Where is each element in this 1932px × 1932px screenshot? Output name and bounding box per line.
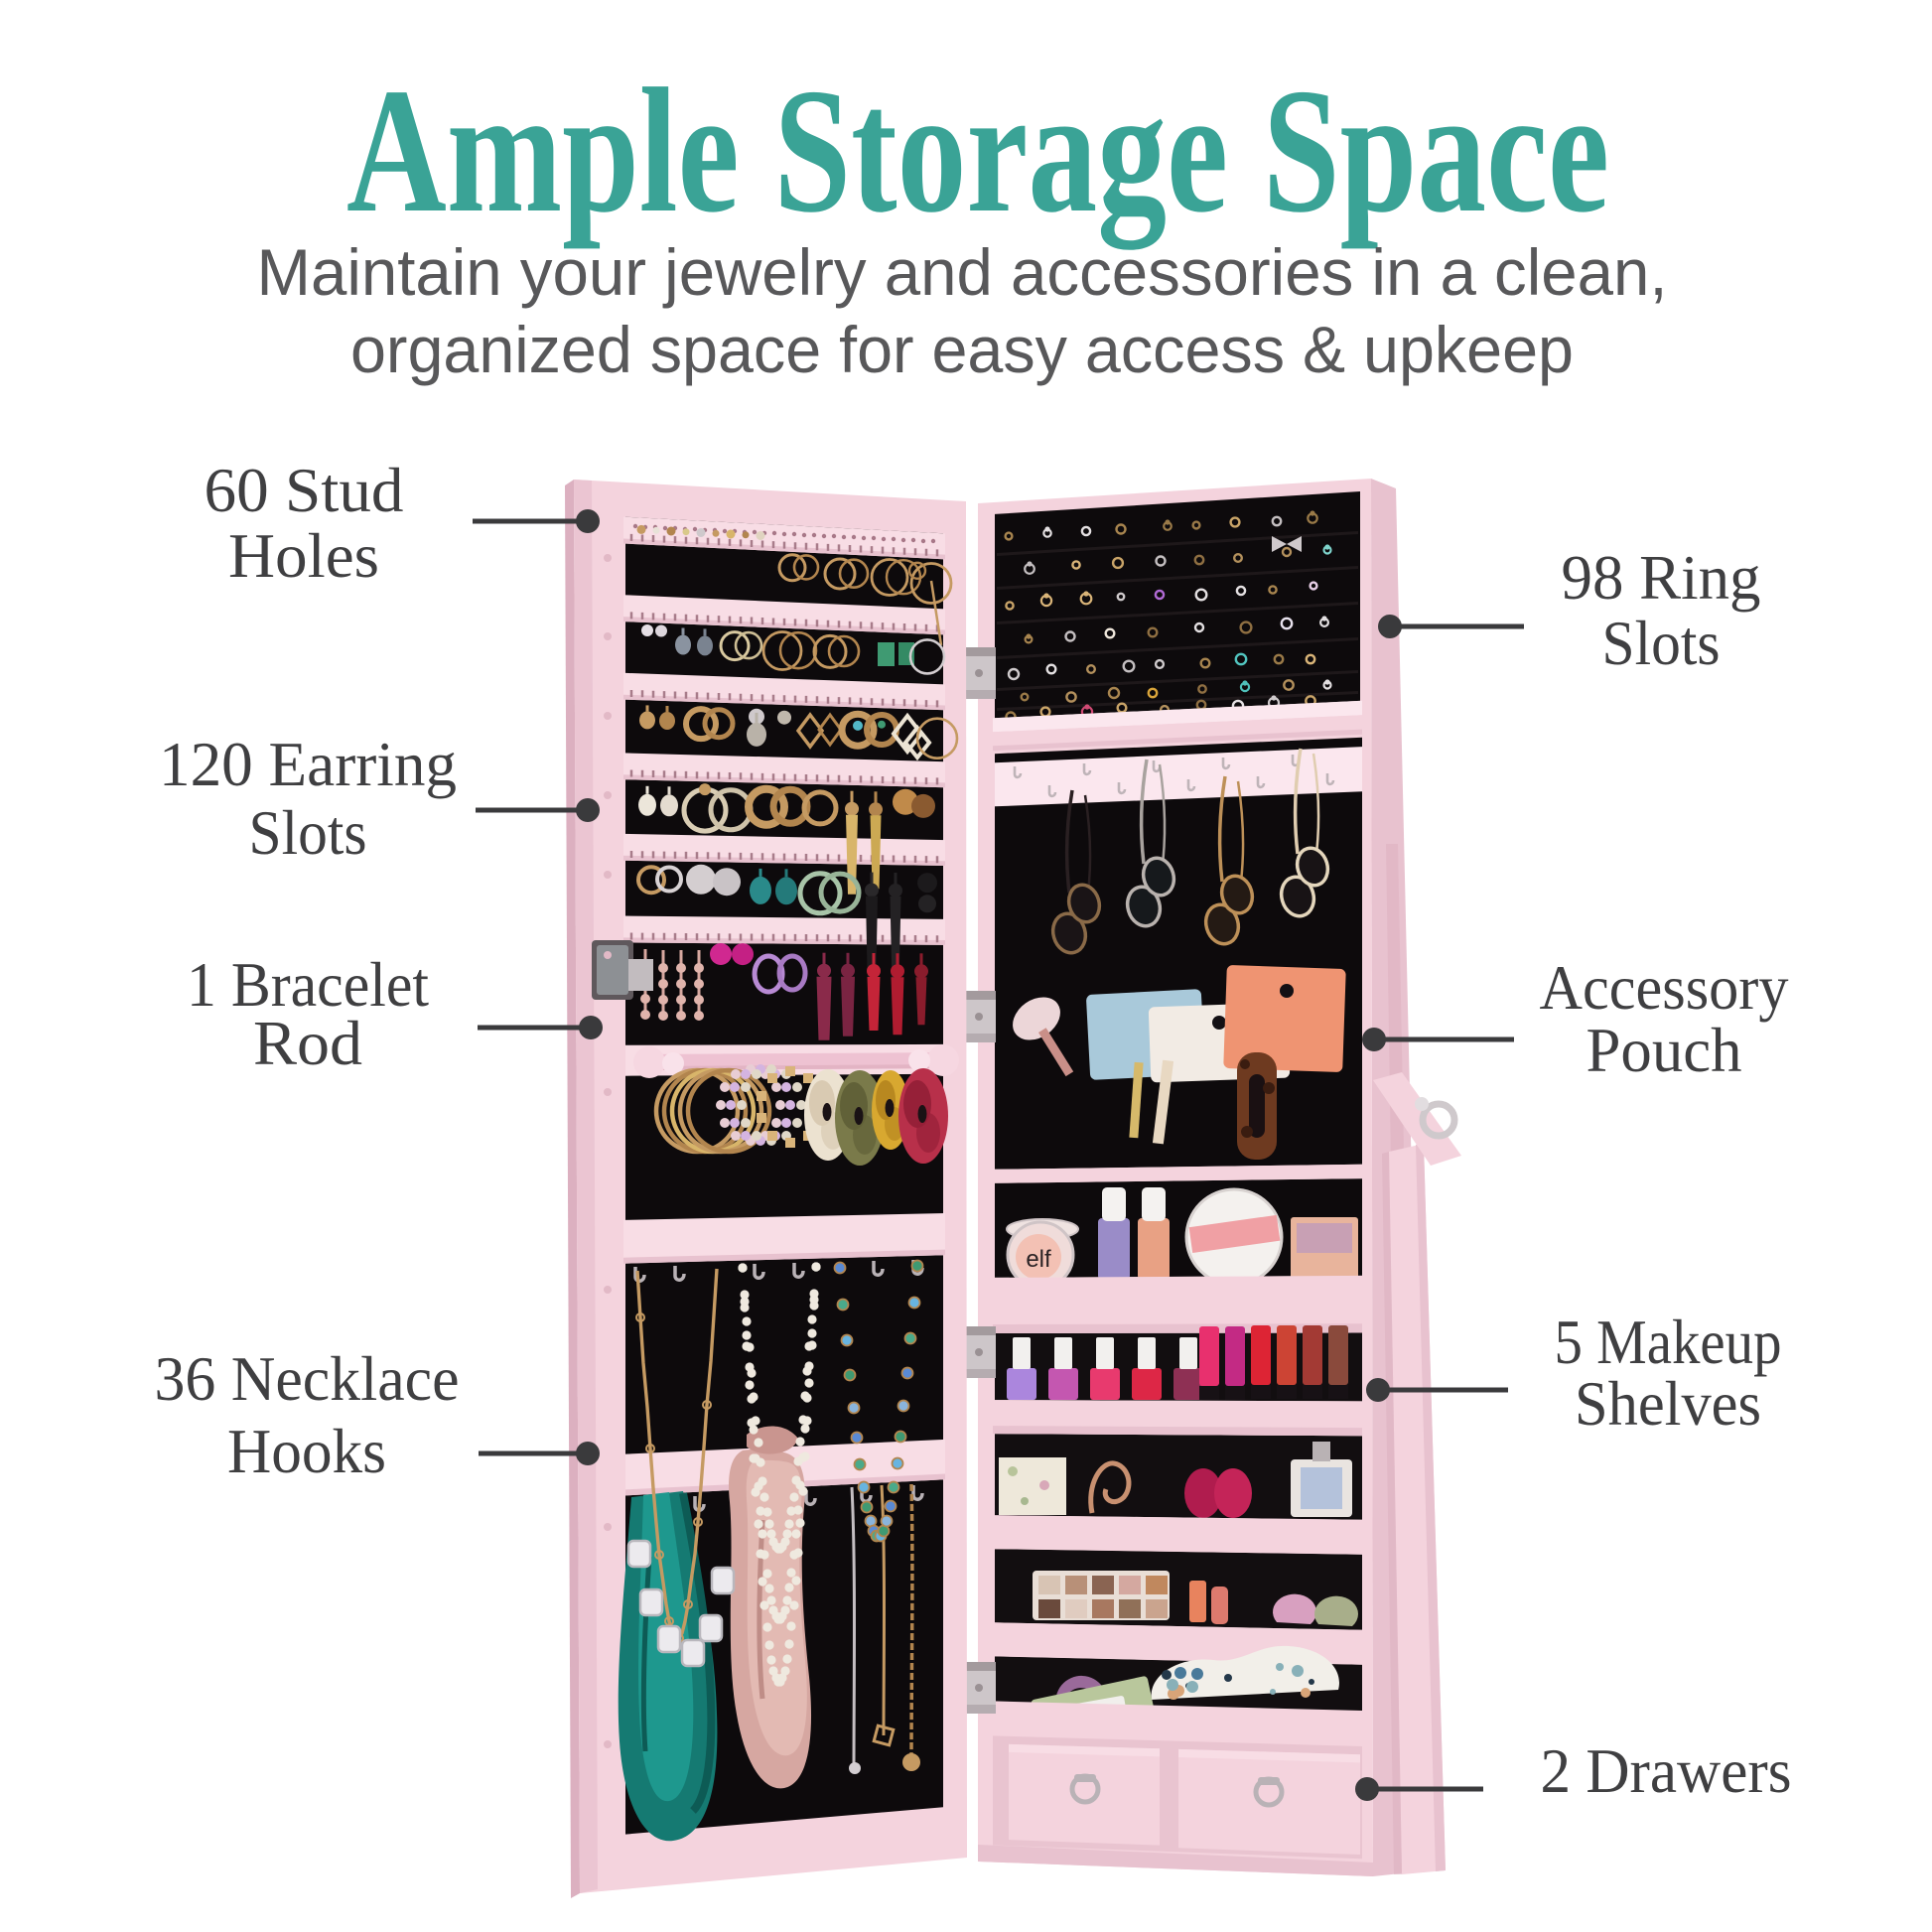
svg-text:Maintain your jewelry and acce: Maintain your jewelry and accessories in… [257,235,1668,309]
svg-text:98 Ring: 98 Ring [1562,542,1761,613]
svg-text:Pouch: Pouch [1587,1015,1742,1085]
svg-text:Ample Storage Space: Ample Storage Space [346,52,1609,250]
svg-text:Shelves: Shelves [1575,1368,1761,1439]
svg-text:Slots: Slots [1602,608,1721,678]
svg-text:Hooks: Hooks [227,1416,386,1486]
svg-text:120 Earring: 120 Earring [159,729,457,799]
svg-text:Accessory: Accessory [1540,952,1789,1023]
svg-text:elf: elf [1026,1246,1051,1273]
svg-text:Holes: Holes [228,520,379,591]
svg-text:60 Stud: 60 Stud [205,455,404,525]
svg-text:Slots: Slots [249,797,367,868]
svg-text:36 Necklace: 36 Necklace [155,1343,460,1414]
svg-text:2 Drawers: 2 Drawers [1541,1735,1792,1806]
svg-text:Rod: Rod [253,1008,362,1078]
svg-text:organized space for easy acces: organized space for easy access & upkeep [350,313,1574,386]
svg-text:5 Makeup: 5 Makeup [1555,1307,1782,1377]
